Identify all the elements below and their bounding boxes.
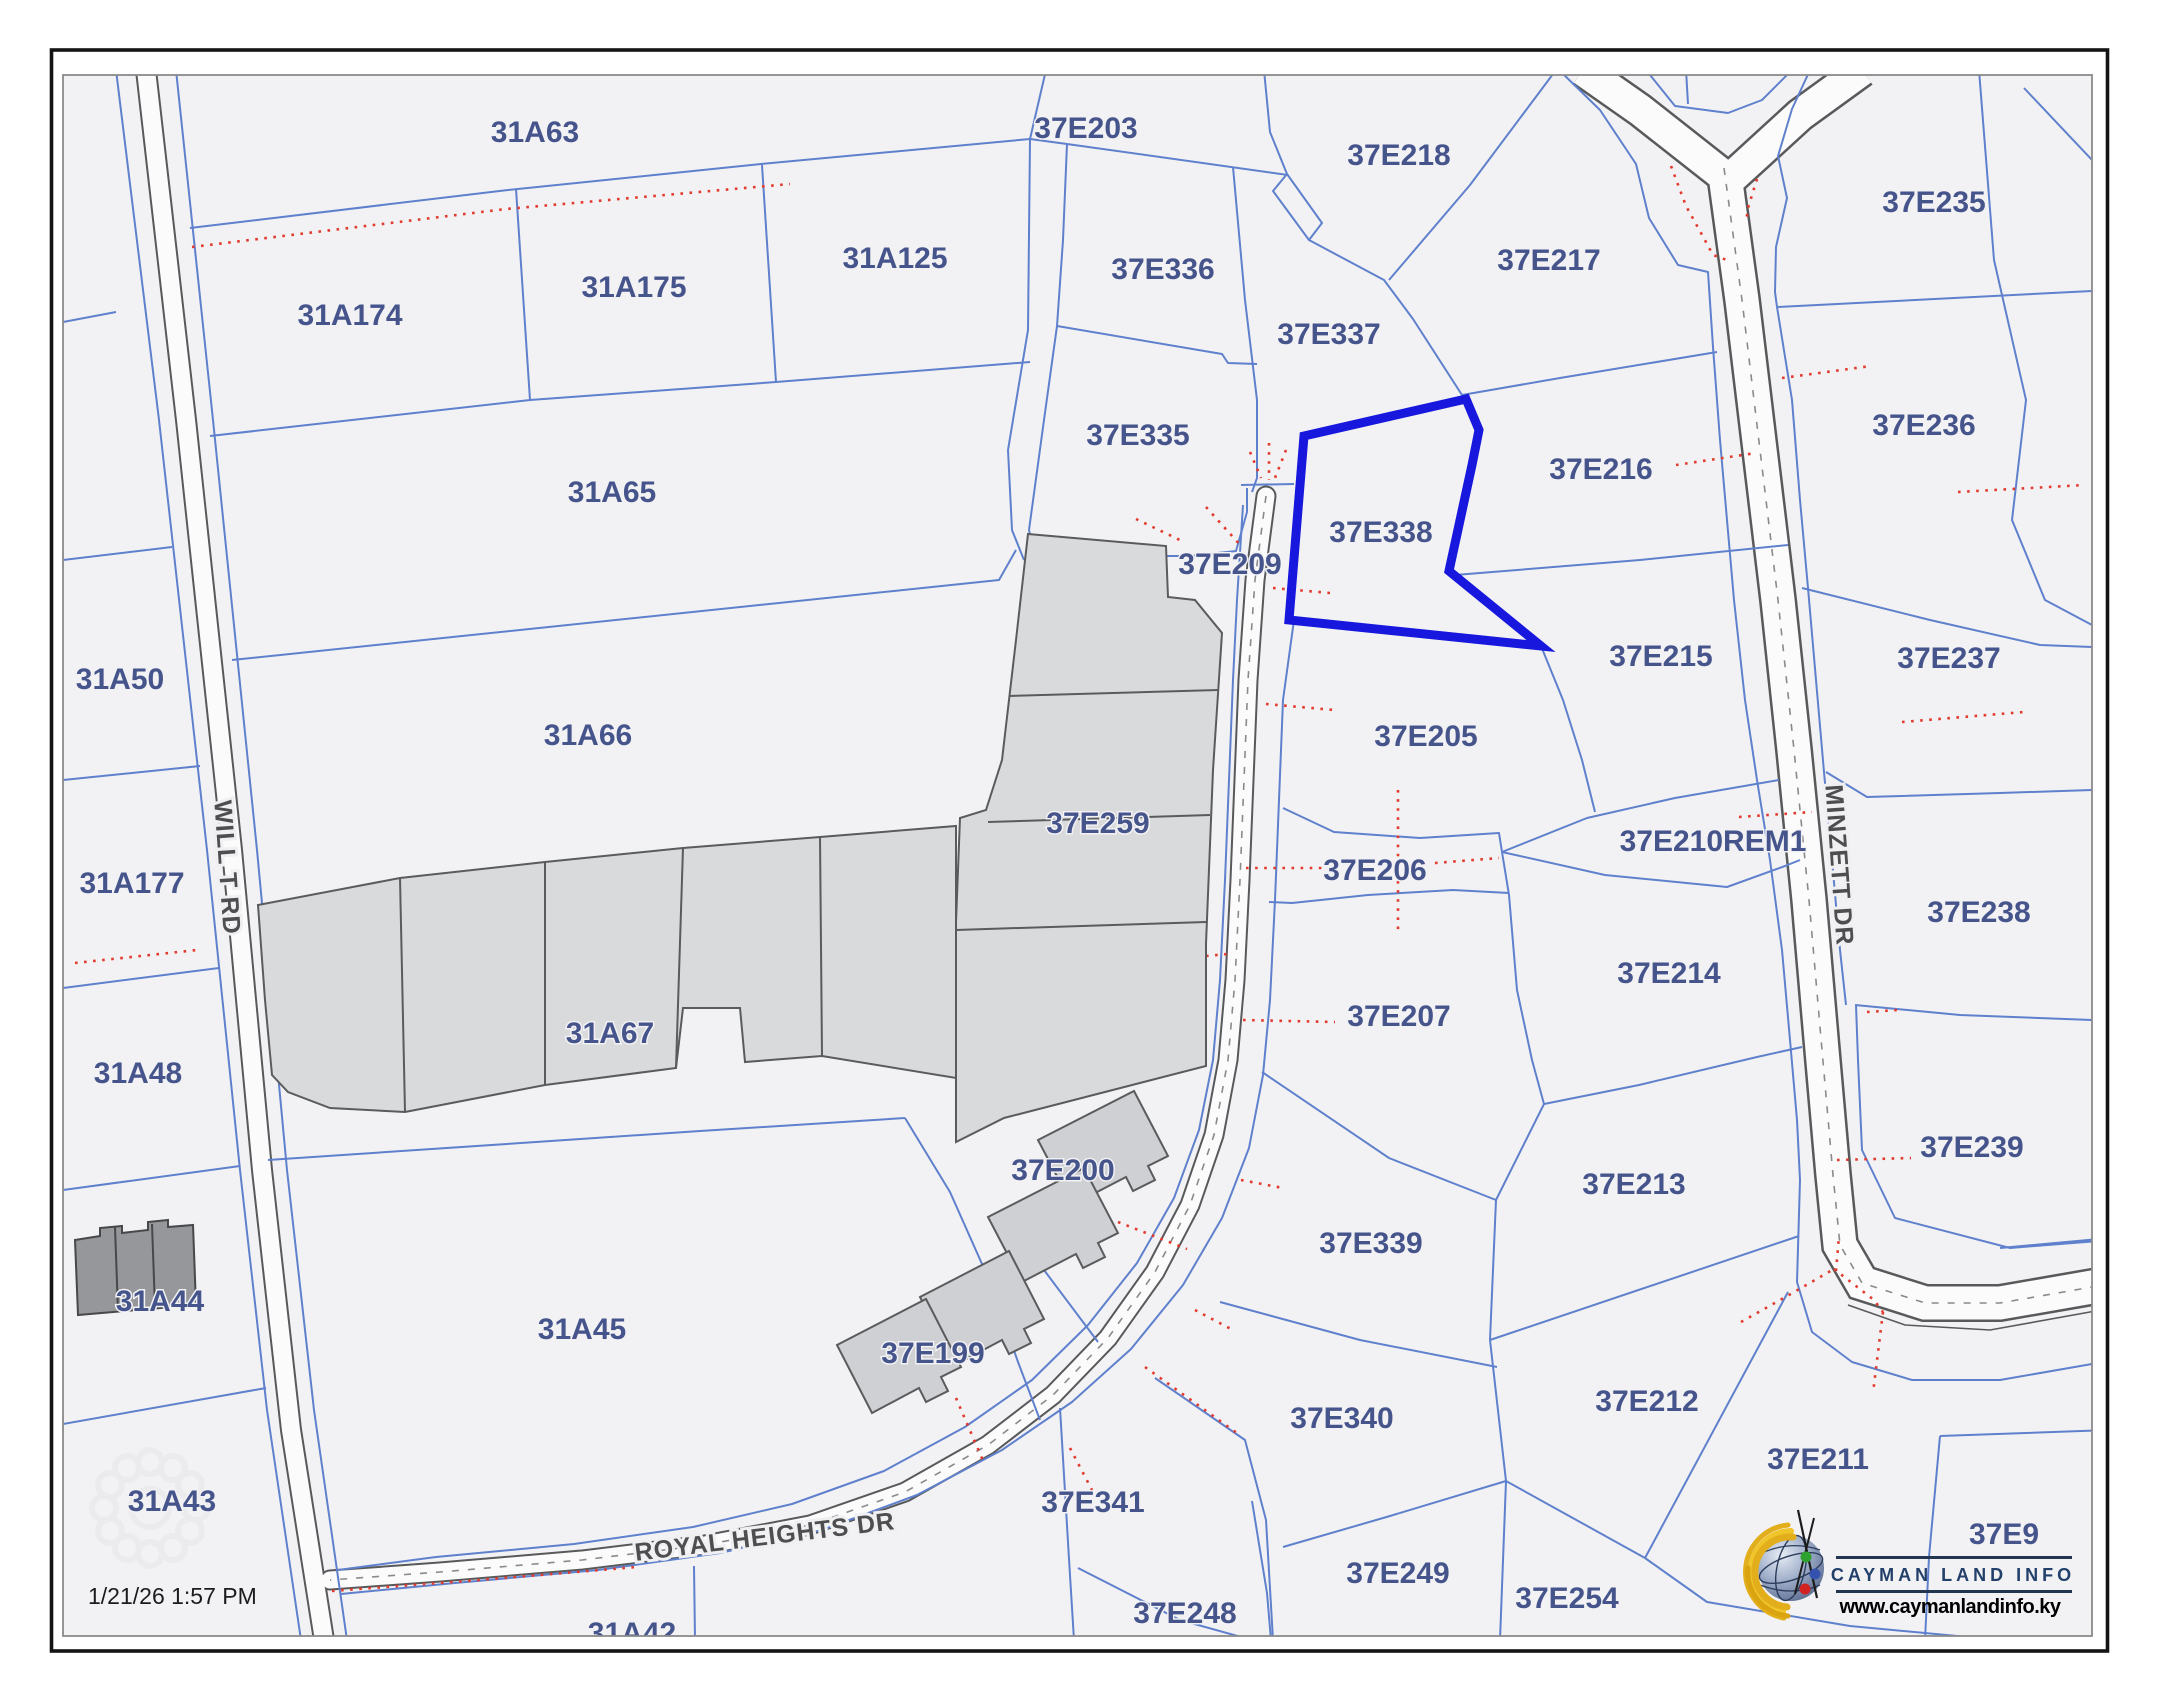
svg-text:37E214: 37E214	[1617, 957, 1721, 990]
svg-text:37E335: 37E335	[1086, 419, 1189, 452]
svg-text:31A48: 31A48	[94, 1057, 182, 1090]
svg-text:31A50: 31A50	[76, 663, 164, 696]
svg-text:37E203: 37E203	[1034, 112, 1137, 145]
svg-text:CAYMAN LAND INFO: CAYMAN LAND INFO	[1831, 1565, 2075, 1585]
svg-text:31A175: 31A175	[581, 271, 686, 304]
svg-text:37E340: 37E340	[1290, 1402, 1393, 1435]
svg-text:37E254: 37E254	[1515, 1582, 1619, 1615]
svg-text:37E211: 37E211	[1767, 1443, 1869, 1476]
svg-text:37E235: 37E235	[1882, 186, 1985, 219]
svg-text:37E237: 37E237	[1897, 642, 2000, 675]
svg-text:37E207: 37E207	[1347, 1000, 1450, 1033]
svg-text:37E213: 37E213	[1582, 1168, 1685, 1201]
svg-text:37E218: 37E218	[1347, 139, 1450, 172]
svg-text:37E336: 37E336	[1111, 253, 1214, 286]
svg-text:37E238: 37E238	[1927, 896, 2030, 929]
svg-text:31A67: 31A67	[566, 1017, 654, 1050]
svg-text:37E199: 37E199	[881, 1337, 984, 1370]
svg-text:37E341: 37E341	[1041, 1486, 1144, 1519]
svg-text:37E210REM1: 37E210REM1	[1620, 825, 1807, 858]
svg-text:37E216: 37E216	[1549, 453, 1652, 486]
svg-text:37E239: 37E239	[1920, 1131, 2023, 1164]
svg-text:31A44: 31A44	[116, 1285, 205, 1318]
svg-text:31A65: 31A65	[568, 476, 656, 509]
svg-text:31A66: 31A66	[544, 719, 632, 752]
svg-text:31A45: 31A45	[538, 1313, 626, 1346]
svg-text:37E9: 37E9	[1969, 1518, 2039, 1551]
svg-text:31A125: 31A125	[842, 242, 947, 275]
svg-text:37E249: 37E249	[1346, 1557, 1449, 1590]
svg-text:37E236: 37E236	[1872, 409, 1975, 442]
svg-text:37E339: 37E339	[1319, 1227, 1422, 1260]
svg-text:31A174: 31A174	[297, 299, 402, 332]
svg-text:1/21/26 1:57 PM: 1/21/26 1:57 PM	[88, 1583, 257, 1609]
svg-text:37E338: 37E338	[1329, 516, 1432, 549]
svg-text:37E205: 37E205	[1374, 720, 1477, 753]
svg-text:31A177: 31A177	[79, 867, 184, 900]
svg-text:37E248: 37E248	[1133, 1597, 1236, 1630]
svg-text:31A43: 31A43	[128, 1485, 216, 1518]
svg-text:www.caymanlandinfo.ky: www.caymanlandinfo.ky	[1838, 1596, 2061, 1618]
svg-text:37E259: 37E259	[1046, 807, 1149, 840]
svg-text:37E337: 37E337	[1277, 318, 1380, 351]
svg-text:37E200: 37E200	[1011, 1154, 1114, 1187]
svg-text:37E206: 37E206	[1323, 854, 1426, 887]
svg-text:37E209: 37E209	[1178, 548, 1281, 581]
svg-text:37E215: 37E215	[1609, 640, 1712, 673]
svg-text:31A63: 31A63	[491, 116, 579, 149]
svg-text:37E217: 37E217	[1497, 244, 1600, 277]
svg-text:37E212: 37E212	[1595, 1385, 1698, 1418]
